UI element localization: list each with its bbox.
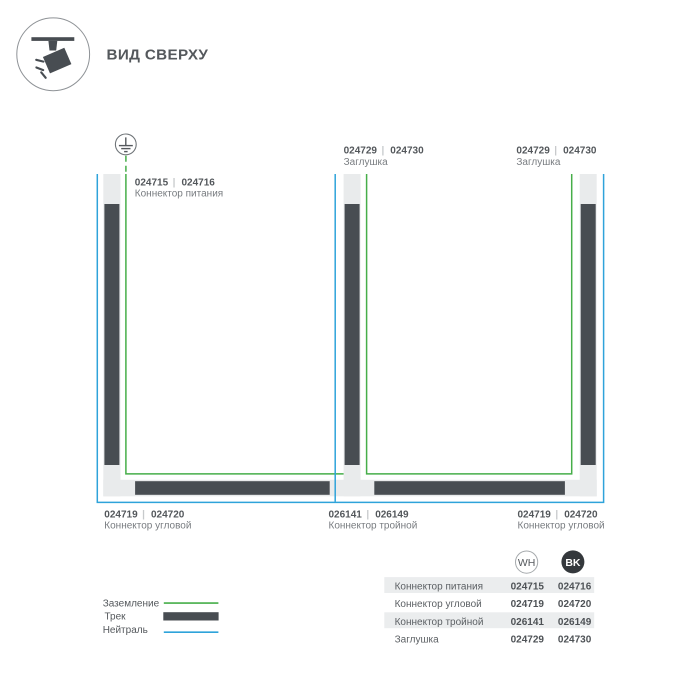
svg-text:024715: 024715 <box>511 582 545 593</box>
svg-text:024715|024716: 024715|024716 <box>135 177 215 188</box>
svg-text:Коннектор тройной: Коннектор тройной <box>329 521 418 532</box>
svg-text:Заглушка: Заглушка <box>516 157 560 168</box>
svg-text:Заземление: Заземление <box>103 598 160 609</box>
svg-text:024719: 024719 <box>511 599 545 610</box>
svg-text:024729|024730: 024729|024730 <box>344 146 424 157</box>
svg-text:024729: 024729 <box>511 634 545 645</box>
svg-text:026141|026149: 026141|026149 <box>329 510 409 521</box>
svg-text:Коннектор угловой: Коннектор угловой <box>395 599 482 610</box>
svg-text:024719|024720: 024719|024720 <box>104 510 184 521</box>
svg-text:026149: 026149 <box>558 617 592 628</box>
svg-text:Нейтраль: Нейтраль <box>103 625 148 636</box>
svg-text:Коннектор угловой: Коннектор угловой <box>518 521 605 532</box>
svg-text:024720: 024720 <box>558 599 592 610</box>
svg-text:ВИД СВЕРХУ: ВИД СВЕРХУ <box>107 46 209 63</box>
svg-text:Заглушка: Заглушка <box>344 157 388 168</box>
svg-text:024716: 024716 <box>558 582 592 593</box>
svg-text:Коннектор питания: Коннектор питания <box>135 188 223 199</box>
svg-text:024729|024730: 024729|024730 <box>516 146 596 157</box>
svg-text:WH: WH <box>518 557 536 569</box>
svg-text:024719|024720: 024719|024720 <box>518 510 598 521</box>
svg-text:BK: BK <box>565 557 581 569</box>
svg-text:Коннектор питания: Коннектор питания <box>395 582 483 593</box>
svg-text:Трек: Трек <box>105 612 127 623</box>
svg-text:024730: 024730 <box>558 634 592 645</box>
svg-text:026141: 026141 <box>511 617 545 628</box>
svg-text:Заглушка: Заглушка <box>395 634 439 645</box>
svg-text:Коннектор тройной: Коннектор тройной <box>395 617 484 628</box>
svg-text:Коннектор угловой: Коннектор угловой <box>104 521 191 532</box>
